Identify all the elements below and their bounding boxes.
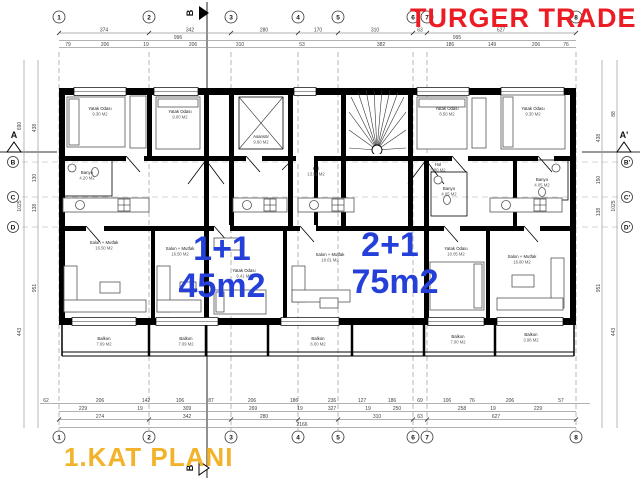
room-name: Banyo — [536, 177, 549, 182]
dim-label: 229 — [534, 406, 543, 412]
axis-label: 1 — [57, 435, 61, 442]
room-name: Hol — [313, 166, 319, 171]
axis-label: B' — [624, 160, 631, 167]
room-name: Asansör — [253, 134, 269, 139]
room-area: 8.50 M2 — [439, 112, 455, 117]
dim-label: 19 — [297, 406, 303, 412]
room-area: 9.60 M2 — [253, 140, 269, 145]
dim-label: 951 — [596, 284, 602, 293]
section-a-label: A — [11, 130, 18, 140]
axis-label: 5 — [336, 435, 340, 442]
dim-total-width: 2166 — [296, 422, 307, 428]
dim-label: 443 — [611, 328, 617, 337]
plan-title: 1.KAT PLANI — [64, 442, 233, 472]
room-area: 16.50 M2 — [95, 246, 113, 251]
room-area: 7.09 M2 — [178, 342, 194, 347]
room-name: Salon + Mutfak — [166, 246, 196, 251]
room-area: 5.80 M2 — [430, 168, 446, 173]
dim-label: 87 — [208, 398, 214, 404]
dim-label: 186 — [388, 398, 397, 404]
axis-label: 3 — [229, 435, 233, 442]
axis-label: 4 — [296, 15, 300, 22]
dim-label: 996 — [174, 35, 183, 41]
dim-label: 280 — [260, 28, 269, 34]
dim-label: 206 — [189, 42, 198, 48]
section-a-prime-label: A' — [620, 130, 629, 140]
dim-label: 142 — [142, 398, 151, 404]
dim-label: 342 — [186, 28, 195, 34]
dim-label: 690 — [17, 122, 23, 131]
room-name: Balkon — [524, 332, 538, 337]
staircase — [349, 90, 406, 155]
room-name: Salon + Mutfak — [90, 240, 120, 245]
dim-label: 206 — [101, 42, 110, 48]
dim-label: 1025 — [17, 200, 23, 211]
room-area: 16.50 M2 — [171, 252, 189, 257]
room-area: 7.09 M2 — [96, 342, 112, 347]
room-area: 18.01 M2 — [321, 258, 339, 263]
dim-label: 150 — [596, 176, 602, 185]
dim-label: 106 — [443, 398, 452, 404]
axis-label: 4 — [296, 435, 300, 442]
dimensions-right: 438 150 138 951 88 1025 443 — [596, 111, 617, 336]
dim-label: 951 — [32, 284, 38, 293]
room-area: 9.00 M2 — [172, 115, 188, 120]
dim-label: 438 — [596, 134, 602, 143]
room-area: 13.91 M2 — [307, 172, 325, 177]
bed — [156, 97, 200, 149]
room-name: Hol — [435, 162, 441, 167]
dim-label: 327 — [328, 406, 337, 412]
company-title: TURGER TRADE — [410, 3, 637, 33]
dim-label: 76 — [563, 42, 569, 48]
room-name: Balkon — [451, 334, 465, 339]
room-area: 10.05 M2 — [447, 252, 465, 257]
room-name: Banyo — [81, 170, 94, 175]
dim-label: 19 — [137, 406, 143, 412]
dim-label: 186 — [290, 398, 299, 404]
dim-label: 19 — [490, 406, 496, 412]
axis-label: B — [11, 160, 16, 167]
dim-label: 374 — [100, 28, 109, 34]
dim-label: 186 — [446, 42, 455, 48]
axis-label: 1 — [57, 15, 61, 22]
dim-label: 63 — [417, 414, 423, 420]
dim-label: 57 — [558, 398, 564, 404]
room-area: 4.05 M2 — [534, 183, 550, 188]
room-area: 16.80 M2 — [513, 260, 531, 265]
kitchens — [63, 198, 562, 212]
room-name: Salon + Mutfak — [316, 252, 346, 257]
dim-label: 1025 — [611, 200, 617, 211]
axis-label: D' — [624, 225, 631, 232]
axis-label: 7 — [425, 435, 429, 442]
axis-label: C — [11, 195, 16, 202]
apartment-left-area: 45m2 — [179, 267, 266, 305]
floor-plan-page: 374 342 280 170 310 63 627 996 995 79 20… — [0, 0, 640, 480]
dim-label: 149 — [488, 42, 497, 48]
dim-label: 170 — [314, 28, 323, 34]
bed — [417, 97, 467, 149]
axis-label: 2 — [147, 435, 151, 442]
room-name: Salon + Mutfak — [508, 254, 538, 259]
room-area: 3.98 M2 — [523, 338, 539, 343]
dim-label: 250 — [393, 406, 402, 412]
dim-label: 258 — [458, 406, 467, 412]
dimensions-left: 438 130 138 951 690 1025 443 — [17, 122, 38, 337]
dim-label: 62 — [43, 398, 49, 404]
dim-label: 438 — [32, 124, 38, 133]
dim-label: 88 — [611, 111, 617, 117]
bed — [501, 95, 565, 149]
axis-label: 5 — [336, 15, 340, 22]
table — [512, 275, 534, 287]
dim-label: 269 — [249, 406, 258, 412]
room-area: 9.30 M2 — [525, 112, 541, 117]
dim-label: 106 — [176, 398, 185, 404]
dim-label: 443 — [17, 328, 23, 337]
dim-label: 995 — [453, 35, 462, 41]
table — [320, 298, 338, 308]
dim-label: 310 — [236, 42, 245, 48]
dim-label: 274 — [96, 414, 105, 420]
dim-label: 342 — [183, 414, 192, 420]
room-name: Yatak Odası — [444, 246, 467, 251]
room-name: Balkon — [179, 336, 193, 341]
room-area: 6.00 M2 — [310, 342, 326, 347]
room-area: 4.20 M2 — [79, 176, 95, 181]
dim-label: 19 — [143, 42, 149, 48]
axis-label: 3 — [229, 15, 233, 22]
dim-label: 206 — [96, 398, 105, 404]
apartment-right-type: 2+1 — [361, 226, 419, 264]
dim-label: 229 — [79, 406, 88, 412]
bed — [67, 97, 125, 147]
dim-label: 310 — [373, 414, 382, 420]
room-name: Yatak Odası — [435, 106, 458, 111]
dimensions-bottom: 62 206 142 106 87 206 186 236 127 186 69… — [43, 398, 564, 428]
dim-label: 127 — [358, 398, 367, 404]
dim-label: 206 — [532, 42, 541, 48]
wardrobe — [472, 98, 486, 148]
dim-label: 138 — [596, 208, 602, 217]
dim-label: 138 — [32, 204, 38, 213]
room-name: Banyo — [443, 186, 456, 191]
dim-label: 382 — [377, 42, 386, 48]
axis-label: D — [11, 225, 16, 232]
dim-label: 206 — [248, 398, 257, 404]
dim-label: 76 — [469, 398, 475, 404]
dim-label: 309 — [183, 406, 192, 412]
section-b-top-label: B — [185, 9, 195, 16]
wardrobe — [130, 96, 146, 148]
apartment-left-type: 1+1 — [193, 230, 251, 268]
sofa — [292, 266, 350, 302]
floor-plan-drawing: 374 342 280 170 310 63 627 996 995 79 20… — [0, 0, 640, 480]
dim-label: 310 — [371, 28, 380, 34]
room-name: Yatak Odası — [521, 106, 544, 111]
room-area: 9.30 M2 — [92, 112, 108, 117]
axis-label: 2 — [147, 15, 151, 22]
axis-label: 8 — [574, 435, 578, 442]
room-name: Balkon — [97, 336, 111, 341]
axis-label: C' — [624, 195, 631, 202]
table — [100, 282, 120, 293]
room-area: 4.05 M2 — [441, 192, 457, 197]
room-area: 7.00 M2 — [450, 340, 466, 345]
apartment-right-area: 75m2 — [352, 263, 439, 301]
dim-label: 206 — [506, 398, 515, 404]
dim-label: 79 — [65, 42, 71, 48]
dim-label: 19 — [365, 406, 371, 412]
dim-label: 53 — [299, 42, 305, 48]
dim-label: 69 — [417, 398, 423, 404]
room-name: Balkon — [311, 336, 325, 341]
dim-label: 236 — [328, 398, 337, 404]
axis-label: 6 — [411, 435, 415, 442]
dim-label: 130 — [32, 174, 38, 183]
room-name: Yatak Odası — [168, 109, 191, 114]
room-name: Yatak Odası — [88, 106, 111, 111]
dim-label: 627 — [492, 414, 501, 420]
dim-label: 280 — [260, 414, 269, 420]
